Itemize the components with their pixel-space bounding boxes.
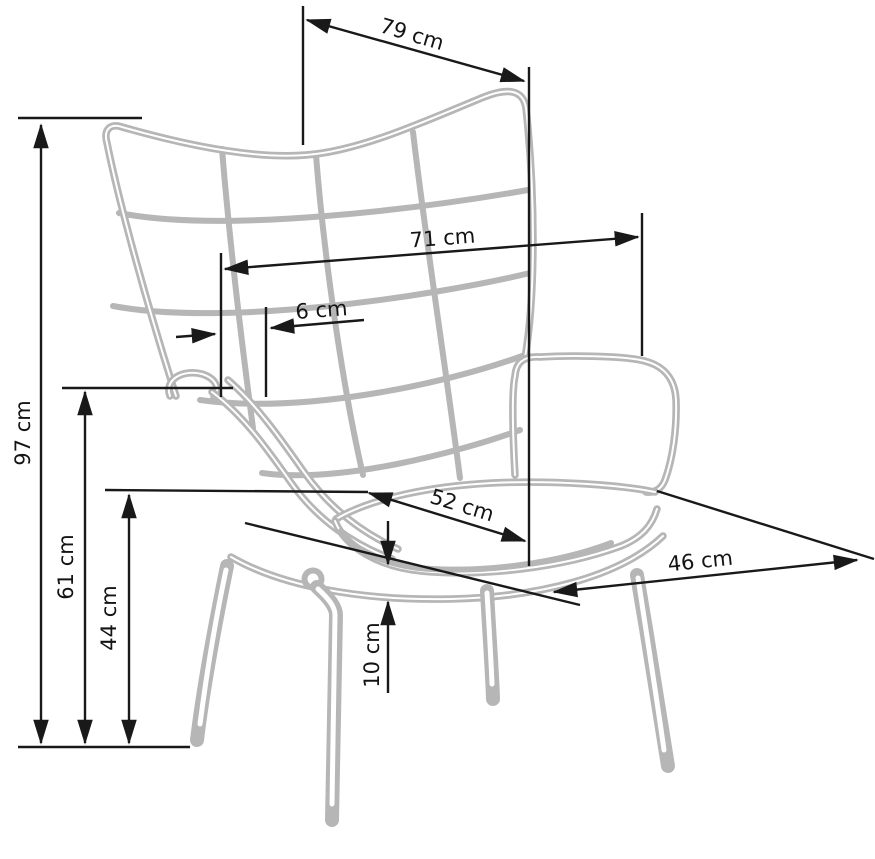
legs [197,566,668,820]
right-armrest-outline [513,356,676,492]
right-armrest [513,356,676,492]
chair-dimension-diagram: 79 cm 71 cm 6 cm 52 cm 46 cm 97 cm 61 cm… [0,0,875,859]
dimension-arrow-6cm-left [176,334,215,337]
extension-line-seat-height [105,490,368,492]
chair-drawing [106,92,676,820]
left-armrest-inner-highlight [228,380,398,549]
dimension-label-52cm: 52 cm [427,484,497,526]
dimension-label-10cm: 10 cm [360,622,384,687]
dimension-label-44cm: 44 cm [97,585,121,650]
dimension-label-46cm: 46 cm [666,546,734,577]
right-armrest-highlight [513,356,676,492]
front-left-leg-highlight [200,570,226,724]
dimension-label-97cm: 97 cm [11,400,35,465]
dimension-label-6cm: 6 cm [295,296,349,324]
extension-line-seat-depth-back [657,491,874,559]
dimension-label-71cm: 71 cm [409,224,476,253]
quilt-seam-vertical-3 [413,132,460,478]
diagram-canvas: 79 cm 71 cm 6 cm 52 cm 46 cm 97 cm 61 cm… [0,0,875,859]
right-leg-highlight [638,578,664,750]
dimension-label-61cm: 61 cm [54,534,78,599]
